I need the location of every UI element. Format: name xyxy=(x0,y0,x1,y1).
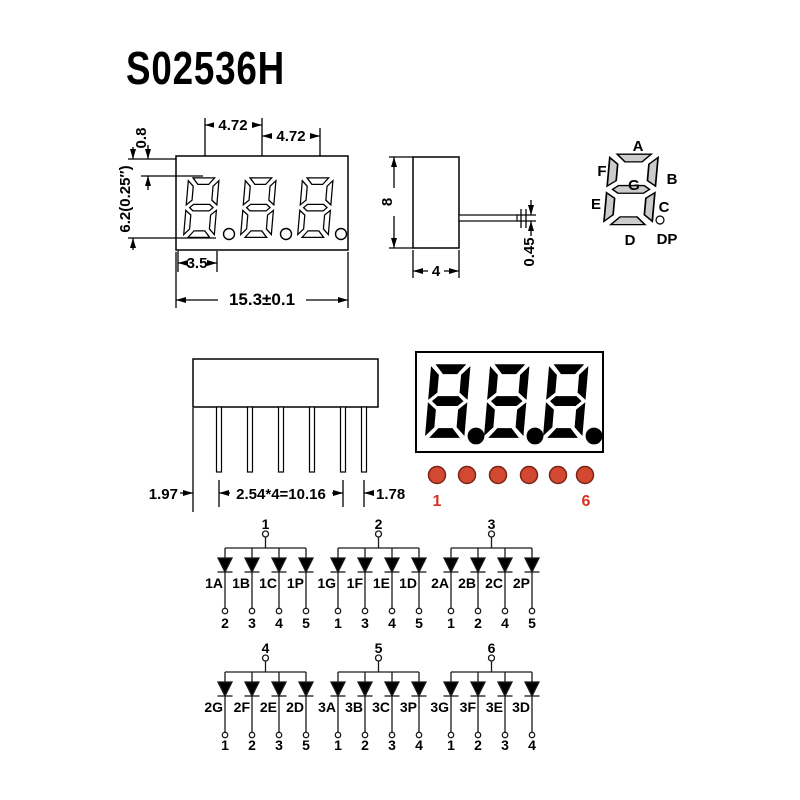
diode-label: 3A xyxy=(318,699,336,715)
pin-number: 5 xyxy=(415,615,423,631)
page-title: S02536H xyxy=(126,42,285,94)
segment-diagram: A F B G E C D DP xyxy=(591,138,678,249)
common-pin-number: 6 xyxy=(488,640,496,656)
dim-digit-pitch-2: 4.72 xyxy=(276,128,305,145)
dim-digit-pitch-1: 4.72 xyxy=(218,117,247,134)
pin-number: 1 xyxy=(334,615,342,631)
diode-label: 2E xyxy=(260,699,277,715)
pin-number: 3 xyxy=(388,737,396,753)
segment-label-f: F xyxy=(597,163,606,180)
dim-body-height: 8 xyxy=(379,198,396,206)
segment-label-e: E xyxy=(591,196,601,213)
led-dot-6 xyxy=(577,467,594,484)
common-pin-number: 4 xyxy=(262,640,270,656)
common-pin-number: 1 xyxy=(262,516,270,532)
diode-label: 3E xyxy=(486,699,503,715)
diode-label: 2A xyxy=(431,575,449,591)
dim-pin-pitch: 2.54*4=10.16 xyxy=(236,486,326,503)
diode-label: 1G xyxy=(317,575,336,591)
common-pin-number: 5 xyxy=(375,640,383,656)
pin-side-view: 1.97 2.54*4=10.16 1.78 xyxy=(149,359,405,512)
diode-label: 3P xyxy=(400,699,417,715)
diode-label: 2F xyxy=(234,699,251,715)
diode-label: 1F xyxy=(347,575,364,591)
pin-number: 2 xyxy=(474,737,482,753)
diode-label: 3F xyxy=(460,699,477,715)
pin-number: 1 xyxy=(221,737,229,753)
pin-number: 3 xyxy=(275,737,283,753)
led-dot-4 xyxy=(521,467,538,484)
segment-label-c: C xyxy=(659,199,670,216)
diode-label: 2P xyxy=(513,575,530,591)
diode-label: 1P xyxy=(287,575,304,591)
diode-label: 3G xyxy=(430,699,449,715)
diode-label: 1B xyxy=(232,575,250,591)
pin-number: 5 xyxy=(528,615,536,631)
side-view-pin xyxy=(459,215,517,221)
pin-view-pins xyxy=(217,407,367,472)
segment-label-g: G xyxy=(628,177,640,194)
diode-label: 1C xyxy=(259,575,277,591)
common-pin-number: 3 xyxy=(488,516,496,532)
segment-label-b: B xyxy=(667,171,678,188)
pin-indicator-row: 1 6 xyxy=(429,467,594,511)
diode-label: 2G xyxy=(204,699,223,715)
pin-number: 1 xyxy=(447,615,455,631)
pin-number: 5 xyxy=(302,615,310,631)
diode-label: 2B xyxy=(458,575,476,591)
led-dot-3 xyxy=(490,467,507,484)
dim-digit-width: 3.5 xyxy=(187,255,208,272)
led-dot-2 xyxy=(459,467,476,484)
pin-number: 2 xyxy=(221,615,229,631)
schematic: 1 1A 1B 1C 1P 2 3 4 5 2 1G 1F 1E 1D 1 3 … xyxy=(204,516,539,753)
datasheet-canvas: S02536H xyxy=(0,0,800,800)
front-view-dimension-lines xyxy=(128,118,348,308)
front-view: 4.72 4.72 0.8 6.2(0.25″) 3.5 15.3±0.1 xyxy=(117,117,348,309)
diode-label: 1D xyxy=(399,575,417,591)
pin-number: 4 xyxy=(275,615,283,631)
segment-dp-circle xyxy=(656,216,664,224)
schematic-group-1: 1 1A 1B 1C 1P 2 3 4 5 xyxy=(205,516,310,631)
segment-label-a: A xyxy=(633,138,644,155)
diode-label: 1E xyxy=(373,575,390,591)
schematic-group-3: 3 2A 2B 2C 2P 1 2 4 5 xyxy=(431,516,536,631)
led-dot-1 xyxy=(429,467,446,484)
dim-left-offset: 1.97 xyxy=(149,486,178,503)
pin-number: 1 xyxy=(334,737,342,753)
dim-right-offset: 1.78 xyxy=(376,486,405,503)
diode-label: 1A xyxy=(205,575,223,591)
dim-top-gap: 0.8 xyxy=(133,128,150,149)
dim-body-depth: 4 xyxy=(432,263,441,280)
segment-label-dp: DP xyxy=(657,231,678,248)
dim-pin-thickness: 0.45 xyxy=(521,237,538,266)
pin-number: 2 xyxy=(361,737,369,753)
led-dot-5 xyxy=(550,467,567,484)
side-view: 8 4 0.45 xyxy=(379,157,538,280)
datasheet-drawing: S02536H xyxy=(0,0,800,800)
dim-total-width: 15.3±0.1 xyxy=(229,290,295,309)
pin-number: 2 xyxy=(474,615,482,631)
pin-row-last-number: 6 xyxy=(582,493,591,510)
pin-number: 3 xyxy=(361,615,369,631)
pin-number: 2 xyxy=(248,737,256,753)
pin-number: 4 xyxy=(415,737,423,753)
diode-label: 3B xyxy=(345,699,363,715)
segment-label-d: D xyxy=(625,232,636,249)
diode-label: 2C xyxy=(485,575,503,591)
common-pin-number: 2 xyxy=(375,516,383,532)
pin-row-first-number: 1 xyxy=(433,493,442,510)
pin-number: 3 xyxy=(501,737,509,753)
led-dots xyxy=(429,467,594,484)
pin-number: 5 xyxy=(302,737,310,753)
front-view-digits xyxy=(184,178,347,240)
diode-label: 2D xyxy=(286,699,304,715)
side-view-body-outline xyxy=(413,157,459,248)
pin-number: 3 xyxy=(248,615,256,631)
pin-number: 4 xyxy=(501,615,509,631)
diode-label: 3D xyxy=(512,699,530,715)
schematic-group-2: 2 1G 1F 1E 1D 1 3 4 5 xyxy=(317,516,423,631)
dim-digit-height: 6.2(0.25″) xyxy=(117,165,134,232)
diode-label: 3C xyxy=(372,699,390,715)
pin-number: 4 xyxy=(388,615,396,631)
display-face xyxy=(416,352,603,452)
pin-number: 4 xyxy=(528,737,536,753)
pin-number: 1 xyxy=(447,737,455,753)
pin-view-body-outline xyxy=(193,359,378,407)
